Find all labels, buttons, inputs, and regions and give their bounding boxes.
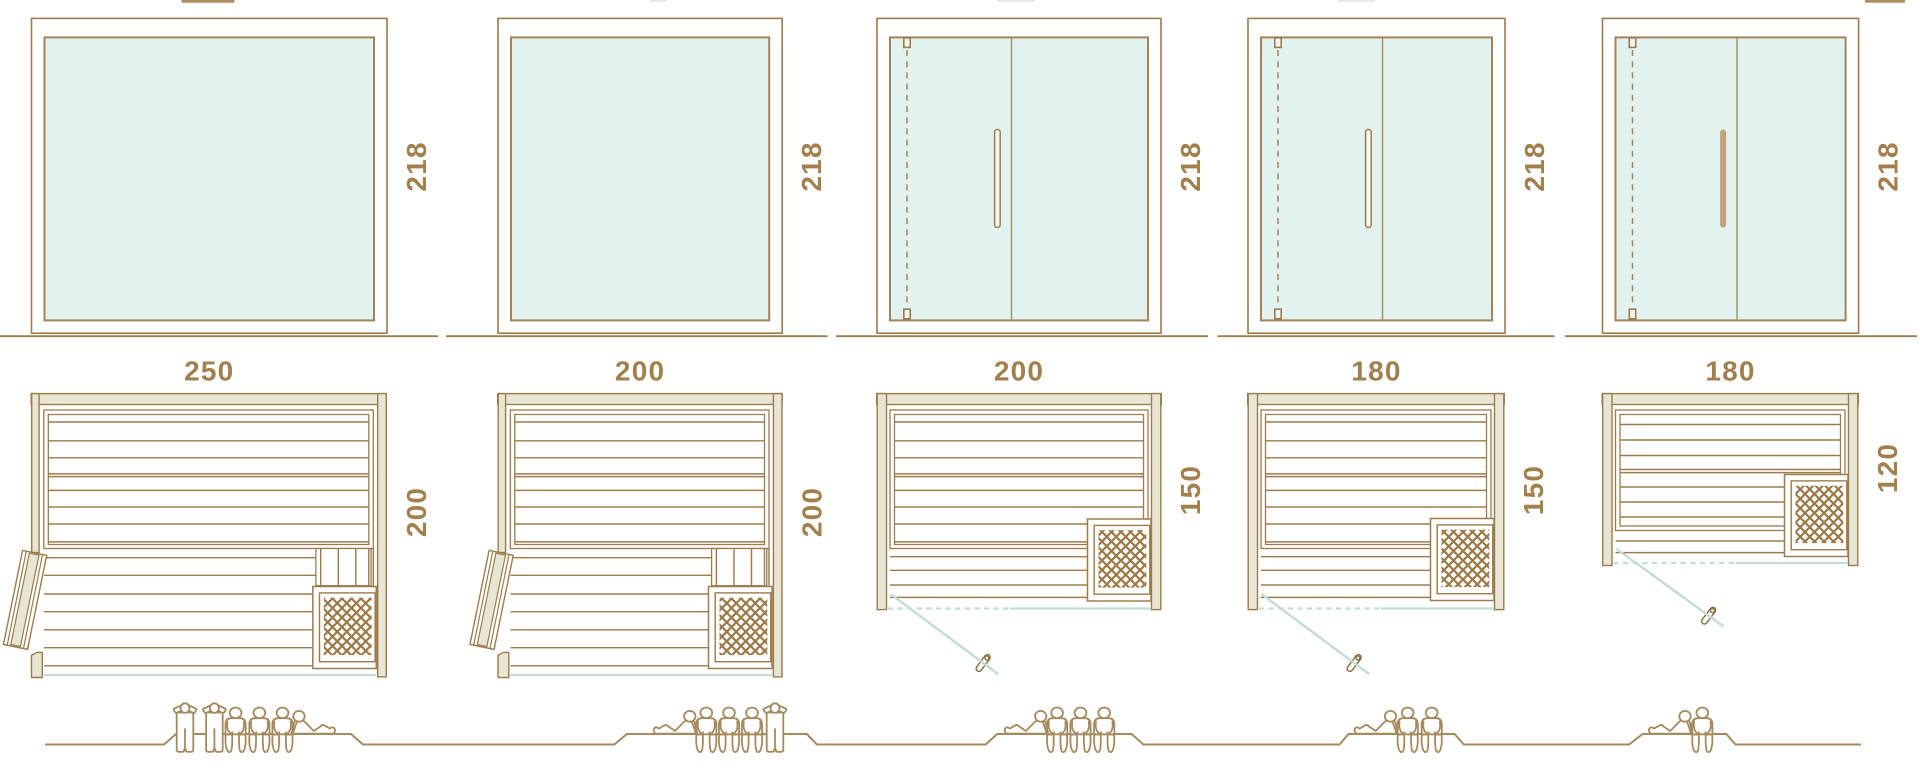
svg-text:120: 120	[1872, 443, 1903, 493]
svg-text:250: 250	[184, 355, 234, 386]
svg-text:200: 200	[615, 355, 665, 386]
svg-text:150: 150	[1518, 465, 1549, 515]
svg-text:200: 200	[401, 487, 432, 537]
svg-text:200: 200	[994, 355, 1044, 386]
svg-text:218: 218	[401, 141, 432, 191]
svg-text:200: 200	[797, 487, 828, 537]
svg-text:218: 218	[1175, 141, 1206, 191]
svg-text:150: 150	[1175, 465, 1206, 515]
svg-text:218: 218	[796, 141, 827, 191]
svg-text:218: 218	[1873, 141, 1904, 191]
svg-text:180: 180	[1705, 355, 1755, 386]
svg-text:180: 180	[1351, 355, 1401, 386]
svg-text:218: 218	[1519, 141, 1550, 191]
